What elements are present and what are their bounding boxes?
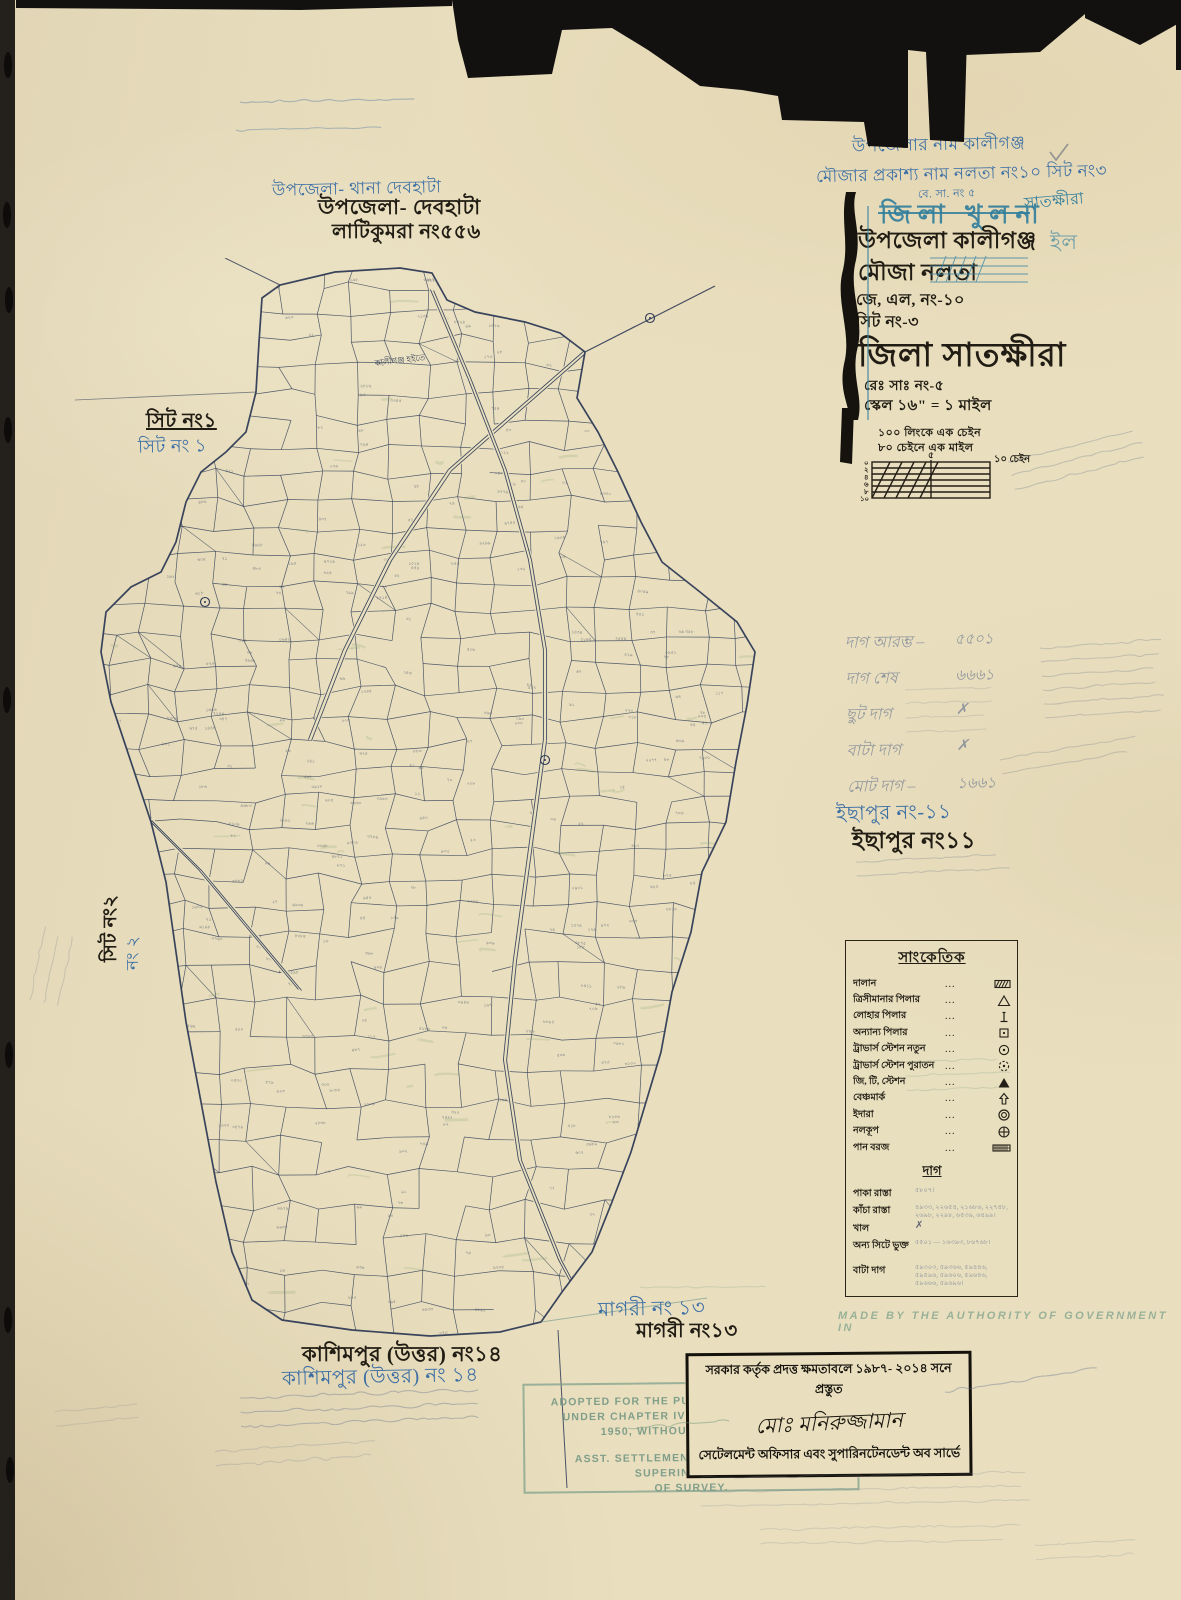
svg-text:৫৯: ৫৯ [198, 1480, 204, 1485]
svg-text:৪৭: ৪৭ [467, 738, 473, 743]
legend-row-label: ট্রাভার্স স্টেশন পুরাতন [853, 1059, 945, 1074]
svg-text:১২১: ১২১ [623, 1179, 632, 1184]
svg-text:০৬৬: ০৬৬ [484, 710, 493, 715]
svg-text:২২৯১: ২২৯১ [279, 817, 291, 823]
svg-text:৭৬: ৭৬ [397, 1200, 403, 1205]
svg-text:১৩৭৩: ১৩৭৩ [218, 1123, 230, 1128]
legend-dag-value: ৪৯৩৩, ২২৬৫৪, ২১৬৮৬, ২২৭৪৮, ২৬৯৮, ২২৯৮, ৬… [915, 1204, 1011, 1220]
svg-text:৩০০: ৩০০ [321, 1082, 330, 1087]
svg-text:০৮৯: ০৮৯ [142, 1121, 151, 1126]
svg-text:৭৬: ৭৬ [465, 1250, 471, 1255]
svg-text:৮৫৪: ৮৫৪ [451, 561, 460, 566]
legend-dots: ... [945, 1110, 967, 1121]
svg-text:৪০৫৯: ৪০৫৯ [637, 588, 649, 594]
svg-text:৯৮: ৯৮ [529, 810, 535, 815]
svg-text:৭২৬২: ৭২৬২ [467, 898, 478, 903]
svg-text:৪৬৪৮: ৪৬৪৮ [251, 542, 263, 547]
svg-text:১০৪৭: ১০৪৭ [771, 1032, 775, 1037]
dag-summary-value: ৫৫০১ [954, 627, 993, 655]
svg-text:৫৫: ৫৫ [123, 762, 129, 767]
legend-dots: ... [945, 995, 967, 1006]
svg-text:১৬৫০: ১৬৫০ [384, 258, 395, 263]
svg-text:৩২: ৩২ [92, 501, 98, 506]
svg-text:৮২৬: ৮২৬ [206, 661, 215, 667]
legend-row: লোহার পিলার... [853, 1009, 1011, 1025]
svg-text:৩৭৬: ৩৭৬ [135, 1295, 144, 1301]
double-circle-icon [967, 1108, 1011, 1122]
svg-text:০০: ০০ [584, 428, 590, 433]
svg-text:৪৬৩৮: ৪৬৩৮ [276, 1224, 288, 1230]
svg-text:৬১৮: ৬১৮ [195, 590, 204, 595]
svg-text:৮৬: ৮৬ [112, 392, 118, 397]
svg-text:৬৬: ৬৬ [340, 676, 346, 681]
dag-summary-row: দাগ আরম্ভ –৫৫০১ [844, 626, 1064, 657]
svg-text:১২৯: ১২৯ [588, 927, 597, 932]
legend-row: বেঞ্চমার্ক... [853, 1091, 1011, 1107]
svg-text:২৪: ২৪ [335, 1416, 341, 1421]
svg-text:৭৯৩১: ৭৯৩১ [699, 755, 711, 761]
svg-text:০৭৬: ০৭৬ [94, 710, 103, 715]
legend-title: সাংকেতিক [853, 946, 1011, 971]
circle-dot-icon [967, 1043, 1011, 1057]
dag-summary-value: ✗ [956, 700, 969, 727]
svg-text:৮৭১: ৮৭১ [337, 863, 346, 868]
svg-text:৯৯: ৯৯ [386, 1486, 392, 1491]
svg-text:১৬৬: ১৬৬ [499, 1097, 508, 1103]
svg-text:৬৫২০: ৬৫২০ [755, 396, 767, 402]
svg-text:৭৫৪: ৭৫৪ [491, 405, 500, 411]
svg-text:২৮১৬: ২৮১৬ [360, 383, 371, 388]
svg-text:৮৪১১: ৮৪১১ [581, 983, 593, 989]
svg-text:৮৬৬: ৮৬৬ [573, 1308, 582, 1313]
svg-text:০৭: ০৭ [325, 1169, 331, 1174]
svg-text:৬৪৪: ৬৪৪ [757, 483, 766, 488]
svg-text:১৭৫: ১৭৫ [484, 354, 493, 359]
svg-text:৩৩৪৪: ৩৩৪৪ [127, 1279, 139, 1285]
svg-text:৮৯৬: ৮৯৬ [751, 521, 760, 526]
svg-text:৮১: ৮১ [230, 833, 236, 838]
svg-text:০৫৫: ০৫৫ [629, 918, 638, 923]
svg-text:৪২: ৪২ [526, 682, 532, 687]
svg-text:৫১: ৫১ [595, 1001, 601, 1006]
legend-row: দালান... [853, 976, 1011, 992]
svg-text:০৯৯৩: ০৯৯৩ [376, 796, 388, 802]
svg-text:১৪: ১৪ [279, 1268, 285, 1273]
svg-text:৮০৩৮: ৮০৩৮ [124, 973, 136, 979]
svg-text:৩২: ৩২ [394, 573, 400, 578]
svg-text:১৩২: ১৩২ [517, 566, 526, 571]
svg-text:০৬: ০৬ [442, 1025, 448, 1030]
svg-text:৯২৩: ৯২৩ [276, 1088, 285, 1093]
header-upazila-name-hw: উপজেলার নাম কালীগঞ্জ [852, 130, 1026, 162]
svg-text:৭৮২: ৭৮২ [684, 540, 693, 545]
svg-text:৬২৫: ৬২৫ [359, 751, 368, 756]
neighbor-kashimpur-blue: কাশিমপুর (উত্তর) নং ১৪ [282, 1360, 479, 1397]
svg-text:৯০৫: ৯০৫ [698, 713, 707, 718]
svg-text:৮৫: ৮৫ [266, 956, 272, 961]
dag-summary-label: দাগ আরম্ভ – [844, 628, 954, 657]
svg-text:৩১: ৩১ [87, 813, 93, 818]
svg-text:১৬৪২: ১৬৪২ [191, 904, 203, 910]
circle-dot-dashed-icon [967, 1059, 1011, 1073]
svg-text:৬৭: ৬৭ [136, 1261, 142, 1266]
svg-text:৩১৪: ৩১৪ [488, 298, 497, 303]
svg-text:৪০৮৪: ৪০৮৪ [294, 933, 306, 939]
legend-row: ত্রিসীমানার পিলার... [853, 992, 1011, 1008]
svg-text:৩৯৭: ৩৯৭ [303, 774, 312, 779]
svg-text:৯৮: ৯৮ [664, 757, 670, 762]
svg-text:২১: ২১ [222, 556, 228, 561]
svg-text:০৩৪৫: ০৩৪৫ [390, 398, 402, 403]
legend-row: অন্যান্য পিলার... [853, 1025, 1011, 1041]
svg-text:৮৩: ৮৩ [613, 1119, 619, 1124]
svg-text:১৫৭৪: ১৫৭৪ [571, 922, 583, 928]
svg-text:৭৪৭: ৭৪৭ [761, 1090, 770, 1095]
svg-text:১১৫৩: ১১৫৩ [179, 1312, 190, 1317]
svg-text:২৮: ২৮ [722, 1150, 728, 1155]
svg-text:২৬: ২৬ [663, 392, 669, 397]
svg-text:২৩: ২৩ [640, 339, 646, 344]
svg-text:৬৭: ৬৭ [582, 1280, 588, 1285]
svg-text:২৮৩৮: ২৮৩৮ [315, 1120, 326, 1125]
svg-text:৮৭: ৮৭ [92, 1028, 98, 1033]
legend-dag-value: ৫৯৩০৩, ৫৯৩৬৬, ৫৯৪৪৬, ৫৯৫৯৬, ৫৯৬০৬, ৫৯৬৪৬… [915, 1264, 1011, 1288]
svg-text:০৮৯৯: ০৮৯৯ [289, 1486, 301, 1492]
svg-text:৮৭২৪: ৮৭২৪ [454, 320, 465, 325]
svg-text:৪৭৩৮: ৪৭৩৮ [696, 449, 708, 455]
svg-text:৪৮৩: ৪৮৩ [252, 566, 261, 572]
svg-text:৮০৬: ৮০৬ [214, 1236, 223, 1241]
svg-text:৫৯১: ৫৯১ [140, 1373, 149, 1378]
svg-text:১২: ১২ [279, 584, 285, 589]
svg-text:৮৮: ৮৮ [232, 1385, 238, 1390]
svg-text:২৬৬: ২৬৬ [305, 821, 314, 826]
svg-text:৩৩: ৩৩ [418, 765, 424, 770]
svg-text:১৯২: ১৯২ [166, 574, 175, 579]
svg-text:৩৫৮: ৩৫৮ [685, 629, 694, 635]
svg-text:৪৯৬৪: ৪৯৬৪ [585, 1298, 597, 1304]
legend-dag-row: পাকা রাস্তা৫৮০৭। [853, 1187, 1011, 1202]
svg-text:২২: ২২ [279, 717, 285, 722]
svg-text:২২৭৭: ২২৭৭ [646, 757, 657, 762]
svg-text:৩৬৮: ৩৬৮ [365, 950, 374, 955]
svg-text:৯০৪: ৯০৪ [744, 1081, 753, 1086]
svg-text:৮৬৫৫: ৮৬৫৫ [628, 1186, 640, 1192]
svg-text:১৪১: ১৪১ [306, 758, 315, 763]
svg-text:১১২: ১১২ [685, 360, 694, 366]
svg-text:৫১৮: ৫১৮ [567, 1123, 576, 1128]
legend-dag-value: ৫৫০১ — ১৬৩৯৩, ৮৬৭৬৮। [915, 1239, 1011, 1247]
svg-text:৩১০: ৩১০ [692, 925, 701, 930]
legend-dag-label: পাকা রাস্তা [853, 1187, 915, 1202]
svg-text:৩৪৭: ৩৪৭ [219, 716, 228, 721]
hatch-rect-fine-icon [967, 1141, 1011, 1155]
legend-dots: ... [945, 1011, 967, 1022]
svg-text:৭৪৫: ৭৪৫ [130, 1152, 139, 1158]
svg-text:১৯: ১৯ [767, 647, 773, 652]
svg-text:৫৪১: ৫৪১ [636, 611, 645, 616]
svg-text:৮৩: ৮৩ [116, 843, 122, 848]
svg-text:৮২: ৮২ [80, 663, 86, 668]
svg-text:৯১: ৯১ [401, 1189, 407, 1194]
svg-text:৭৭৬: ৭৭৬ [400, 1233, 409, 1238]
svg-text:৪৪১: ৪৪১ [767, 864, 775, 869]
svg-text:৬: ৬ [864, 481, 869, 489]
svg-text:৯৮৫: ৯৮৫ [688, 1285, 697, 1290]
svg-text:১৯৩৪: ১৯৩৪ [554, 535, 566, 541]
svg-text:০৫: ০৫ [383, 557, 389, 562]
svg-text:৫২১: ৫২১ [225, 468, 234, 474]
svg-text:৮৫: ৮৫ [690, 880, 696, 885]
svg-text:২৩: ২৩ [470, 837, 476, 842]
svg-text:৮৮৩: ৮৮৩ [413, 748, 422, 753]
svg-text:০১১: ০১১ [235, 1460, 244, 1465]
svg-text:৭৪: ৭৪ [549, 927, 555, 932]
svg-text:৩৭: ৩৭ [650, 630, 656, 635]
svg-text:৩৫৬৬: ৩৫৬৬ [184, 1023, 196, 1029]
svg-text:৫০: ৫০ [386, 1483, 392, 1488]
dag-summary-row: ছুট দাগ✗ [846, 698, 1066, 729]
svg-text:১১: ১১ [415, 791, 421, 796]
svg-text:৬৪: ৬৪ [675, 694, 681, 699]
svg-text:৭৯৭: ৭৯৭ [600, 539, 609, 544]
neighbor-latikumra: লাটিকুমরা নং৫৫৬ [332, 217, 481, 250]
svg-text:৫১৭: ৫১৭ [142, 508, 151, 513]
svg-text:৫১: ৫১ [702, 720, 708, 725]
svg-text:৮৮৯৪: ৮৮৯৪ [543, 1019, 555, 1024]
svg-text:৬৪৯৬: ৬৪৯৬ [701, 293, 713, 299]
svg-text:৫৩৮: ৫৩৮ [467, 647, 476, 653]
svg-text:৭২: ৭২ [226, 1283, 232, 1288]
svg-text:১২৪৫: ১২৪৫ [361, 688, 373, 693]
header-district-correction-hw: সাতক্ষীরা [1023, 185, 1085, 217]
svg-text:২৯: ২৯ [720, 1052, 726, 1057]
svg-text:৯২৯৯: ৯২৯৯ [479, 540, 491, 545]
legend-row-label: বেঞ্চমার্ক [853, 1091, 945, 1106]
svg-text:৩৮: ৩৮ [774, 686, 775, 691]
legend-dag-row: কাঁচা রাস্তা৪৯৩৩, ২২৬৫৪, ২১৬৮৬, ২২৭৪৮, ২… [853, 1204, 1011, 1220]
legend-row-label: লোহার পিলার [853, 1009, 945, 1024]
svg-text:১১৭: ১১৭ [715, 690, 724, 695]
svg-text:৬৮৩: ৬৮৩ [184, 279, 193, 285]
svg-text:৩৬: ৩৬ [247, 650, 253, 655]
svg-text:৮৩৫৯: ৮৩৫৯ [216, 1316, 228, 1322]
svg-text:১৩: ১৩ [673, 335, 679, 340]
svg-text:৯৩৩০: ৯৩৩০ [600, 491, 612, 496]
svg-text:২১১২: ২১১২ [764, 473, 775, 479]
svg-text:১৮৮: ১৮৮ [576, 944, 585, 949]
svg-text:৪৬: ৪৬ [702, 899, 708, 904]
svg-text:৬৮৬৮: ৬৮৬৮ [744, 1253, 756, 1259]
svg-text:৪৩৭: ৪৩৭ [318, 516, 327, 521]
neighbor-sheet2-blue: নং ২ [120, 936, 148, 970]
svg-text:৫৫৪: ৫৫৪ [411, 565, 420, 570]
benchmark-arrow-icon [967, 1092, 1011, 1106]
svg-text:৬৭৯: ৬৭৯ [711, 300, 720, 306]
scalebar-ticks: ০২৪৬৮১০ [860, 459, 869, 503]
svg-text:৮১৩৬: ৮১৩৬ [609, 1114, 620, 1119]
svg-text:৫৫৬১: ৫৫৬১ [474, 1307, 486, 1313]
svg-text:৯১৯৮: ৯১৯৮ [199, 924, 210, 929]
svg-text:৭৯০: ৭৯০ [713, 942, 722, 947]
svg-text:৭০: ৭০ [447, 777, 453, 782]
svg-text:৯৭৪৫: ৯৭৪৫ [504, 520, 516, 526]
legend-dots: ... [945, 1061, 967, 1072]
svg-text:৯০৩৬: ৯০৩৬ [687, 1278, 698, 1283]
svg-text:৯৮৭: ৯৮৭ [351, 1047, 360, 1053]
legend-dag-label: অন্য সিটে ভুক্ত [853, 1239, 915, 1254]
legend-dots: ... [945, 1126, 967, 1137]
svg-text:০৫: ০৫ [361, 1018, 367, 1023]
svg-text:২৭: ২৭ [272, 899, 278, 904]
dag-summary-label: বাটা দাগ [846, 736, 956, 765]
svg-text:২০০: ২০০ [514, 721, 523, 726]
svg-text:৪৭৫: ৪৭৫ [206, 307, 215, 312]
svg-text:৫০: ৫০ [520, 478, 526, 483]
svg-text:৩৭৬: ৩৭৬ [676, 416, 685, 422]
svg-text:০২৩: ০২৩ [109, 1388, 118, 1394]
svg-text:৮১২৩: ৮১২৩ [330, 1420, 341, 1425]
svg-text:৭১১৭: ৭১১৭ [88, 1335, 99, 1340]
legend-row-label: ট্রাভার্স স্টেশন নতুন [853, 1042, 945, 1057]
svg-text:১৪৪৮: ১৪৪৮ [204, 725, 216, 731]
svg-text:৮৭০: ৮৭০ [348, 1295, 357, 1300]
svg-text:৩৬: ৩৬ [114, 1154, 120, 1159]
svg-text:৭৩: ৭৩ [591, 396, 597, 401]
svg-text:৪০৫: ৪০৫ [325, 798, 334, 803]
svg-text:৪২: ৪২ [612, 290, 618, 295]
legend-dag-label: কাঁচা রাস্তা [853, 1204, 915, 1219]
svg-text:৭৭২৪: ৭৭২৪ [87, 1294, 99, 1300]
svg-text:১৯৫: ১৯৫ [288, 561, 297, 566]
svg-text:৯৯০১: ৯৯০১ [97, 520, 109, 526]
svg-text:৭২৬: ৭২৬ [164, 362, 173, 368]
legend-dots: ... [945, 1093, 967, 1104]
svg-text:২১৬৫: ২১৬৫ [580, 636, 592, 642]
svg-text:৯৩: ৯৩ [485, 1232, 491, 1237]
svg-text:৮১: ৮১ [771, 1287, 775, 1292]
svg-text:৯৪৫: ৯৪৫ [363, 895, 372, 900]
bn-stamp-line1: সরকার কর্তৃক প্রদত্ত ক্ষমতাবলে ১৯৮৭- ২০১… [688, 1354, 968, 1402]
svg-text:১৬: ১৬ [322, 938, 328, 943]
svg-text:১৬৯৬: ১৬৯৬ [205, 707, 217, 713]
svg-text:৪৪: ৪৪ [360, 915, 366, 920]
svg-text:৪১২: ৪১২ [260, 267, 269, 272]
svg-text:৩৬৮৯: ৩৬৮৯ [586, 1141, 598, 1147]
svg-text:৩৭৯: ৩৭৯ [155, 1390, 164, 1395]
svg-text:৬১: ৬১ [770, 740, 775, 745]
svg-text:২৫৩৩: ২৫৩৩ [172, 1306, 184, 1311]
bn-stamp-signature: মোঃ মনিরুজ্জামান [688, 1395, 970, 1450]
legend-dag-value: ✗ [915, 1222, 1011, 1230]
svg-text:৬২৫: ৬২৫ [323, 570, 332, 575]
svg-text:০৬৪২: ০৬৪২ [279, 637, 290, 642]
legend-dag-label: খাল [853, 1222, 915, 1237]
svg-text:৯৯৭৯: ৯৯৭৯ [277, 1205, 289, 1210]
en-stamp-line5: OF SURVEY. [525, 1479, 857, 1497]
svg-text:৪৩৬: ৪৩৬ [356, 1264, 365, 1270]
svg-text:৭৯: ৭৯ [450, 1426, 456, 1431]
dag-summary-label: ছুট দাগ [846, 700, 956, 729]
svg-text:৪২৭২: ৪২৭২ [245, 266, 256, 271]
svg-text:০৯৫১: ০৯৫১ [665, 650, 676, 655]
svg-text:৪০৭০: ৪০৭০ [169, 1356, 181, 1362]
svg-text:৯৫০: ৯৫০ [89, 1061, 98, 1066]
svg-text:৭০৮: ৭০৮ [467, 781, 476, 787]
legend-dots: ... [945, 1143, 967, 1154]
hatch-rect-icon [967, 977, 1011, 991]
svg-text:৩৭৮৯: ৩৭৮৯ [367, 834, 379, 840]
svg-text:৫০০: ৫০০ [235, 1027, 244, 1032]
svg-text:৩২০: ৩২০ [451, 1110, 460, 1116]
legend-row-label: জি, টি, স্টেশন [853, 1075, 945, 1090]
legend-row: নলকূপ... [853, 1124, 1011, 1140]
svg-text:১৬৭৮: ১৬৭৮ [78, 375, 90, 381]
dag-summary: দাগ আরম্ভ –৫৫০১দাগ শেষ৬৬৬১ছুট দাগ✗বাটা দ… [844, 626, 1067, 810]
svg-text:২৮৬: ২৮৬ [617, 984, 626, 989]
svg-text:৫৩: ৫৩ [285, 748, 291, 753]
svg-text:০৩৩: ০৩৩ [83, 352, 92, 357]
svg-text:৪: ৪ [864, 473, 869, 481]
svg-text:৭৪৯৭: ৭৪৯৭ [442, 1115, 454, 1120]
svg-text:৪৯৭: ৪৯৭ [631, 843, 640, 848]
legend-dag-value: ৫৮০৭। [915, 1187, 1011, 1195]
svg-text:৩৭৬০: ৩৭৬০ [211, 936, 223, 942]
svg-text:৬২১: ৬২১ [533, 1326, 542, 1331]
svg-text:০৩৭: ০৩৭ [359, 1412, 368, 1418]
svg-text:৬২৩: ৬২৩ [285, 314, 294, 320]
legend-rows: দালান...ত্রিসীমানার পিলার...লোহার পিলার.… [853, 976, 1011, 1156]
svg-text:৫৭৯: ৫৭৯ [265, 1080, 274, 1085]
scale-top-mid-label: ৫ [928, 448, 934, 463]
svg-text:০১১২: ০১১২ [497, 449, 509, 455]
svg-text:৯০২: ৯০২ [399, 1148, 408, 1153]
dag-summary-value: ১৬৬১ [957, 771, 996, 799]
legend-dots: ... [945, 979, 967, 990]
legend-dag-row: বাটা দাগ৫৯৩০৩, ৫৯৩৬৬, ৫৯৪৪৬, ৫৯৫৯৬, ৫৯৬০… [853, 1264, 1011, 1288]
svg-text:৭৫৮৮: ৭৫৮৮ [210, 1250, 222, 1255]
svg-text:৮১: ৮১ [92, 1201, 98, 1206]
svg-text:৮৭৫: ৮৭৫ [663, 873, 672, 878]
legend-row-label: দালান [853, 977, 945, 992]
svg-text:৬২৫: ৬২৫ [650, 884, 659, 889]
svg-text:৫২: ৫২ [578, 821, 584, 826]
svg-text:১৯: ১৯ [128, 389, 134, 394]
header-upazila-ghost-stamp: ইল [1050, 226, 1078, 261]
svg-text:৭৪৯: ৭৪৯ [420, 1141, 429, 1146]
svg-text:১৫৯৮: ১৫৯৮ [287, 969, 299, 975]
dag-summary-label: দাগ শেষ [845, 664, 955, 693]
svg-text:৭১: ৭১ [206, 917, 212, 922]
svg-text:১০১৯: ১০১৯ [408, 561, 419, 566]
legend-dag-rows: পাকা রাস্তা৫৮০৭।কাঁচা রাস্তা৪৯৩৩, ২২৬৫৪,… [853, 1187, 1011, 1288]
svg-text:৯৮৬: ৯৮৬ [198, 499, 207, 505]
svg-text:৩০৬: ৩০৬ [773, 398, 775, 403]
svg-text:৭৭৩: ৭৭৩ [625, 708, 634, 713]
svg-text:৫২২: ৫২২ [426, 278, 435, 283]
svg-text:৯৮: ৯৮ [358, 428, 364, 433]
svg-text:৫০৬: ৫০৬ [557, 1052, 566, 1058]
svg-text:৯৯৩৩: ৯৯৩৩ [422, 1307, 433, 1312]
svg-text:৩১: ৩১ [227, 763, 233, 768]
svg-text:৯৫৬: ৯৫৬ [104, 418, 113, 423]
svg-text:৯০৪: ৯০৪ [374, 965, 383, 970]
svg-text:৪২১: ৪২১ [274, 1432, 283, 1437]
svg-text:০৫০: ০৫০ [494, 470, 503, 475]
svg-text:২২৯২: ২২৯২ [683, 1211, 694, 1216]
svg-text:৭০৯: ৭০৯ [589, 1006, 598, 1012]
svg-text:০৫০১: ০৫০১ [106, 443, 118, 449]
